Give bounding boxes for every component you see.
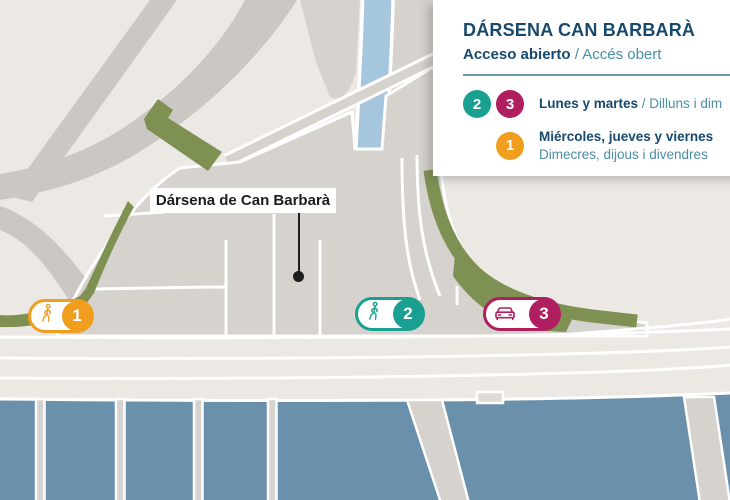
marker-number-badge: 2	[393, 299, 423, 329]
legend-row-open-mon-tue: 2 3 Lunes y martes / Dilluns i dim	[463, 90, 730, 118]
legend-title: DÁRSENA CAN BARBARÀ	[463, 20, 730, 41]
legend-badge-3: 3	[496, 90, 524, 118]
car-icon	[492, 302, 518, 327]
legend-subtitle: Acceso abierto / Accés obert	[463, 46, 730, 63]
marker-number-badge: 3	[529, 299, 559, 329]
legend-row-label: Miércoles, jueves y viernes Dimecres, di…	[539, 128, 713, 163]
place-label: Dársena de Can Barbarà	[150, 188, 336, 213]
harbor-water	[0, 394, 730, 500]
map-marker-pedestrian-1: 1	[28, 299, 94, 333]
legend-panel: DÁRSENA CAN BARBARÀ Acceso abierto / Acc…	[433, 0, 730, 176]
map-marker-pedestrian-2: 2	[355, 297, 425, 331]
legend-row-label: Lunes y martes / Dilluns i dim	[539, 95, 722, 113]
label-leader-line	[298, 213, 300, 273]
marker-number-badge: 1	[62, 301, 92, 331]
label-leader-dot	[293, 271, 304, 282]
legend-badge-2: 2	[463, 90, 491, 118]
legend-row-open-wed-thu-fri: 1 Miércoles, jueves y viernes Dimecres, …	[463, 128, 730, 163]
infographic-map: Dársena de Can Barbarà 1	[0, 0, 730, 500]
pedestrian-icon	[37, 303, 57, 330]
canal	[371, 0, 378, 150]
legend-divider	[463, 74, 730, 76]
legend-badge-1: 1	[496, 132, 524, 160]
pedestrian-icon	[364, 301, 384, 328]
map-marker-car-3: 3	[483, 297, 561, 331]
